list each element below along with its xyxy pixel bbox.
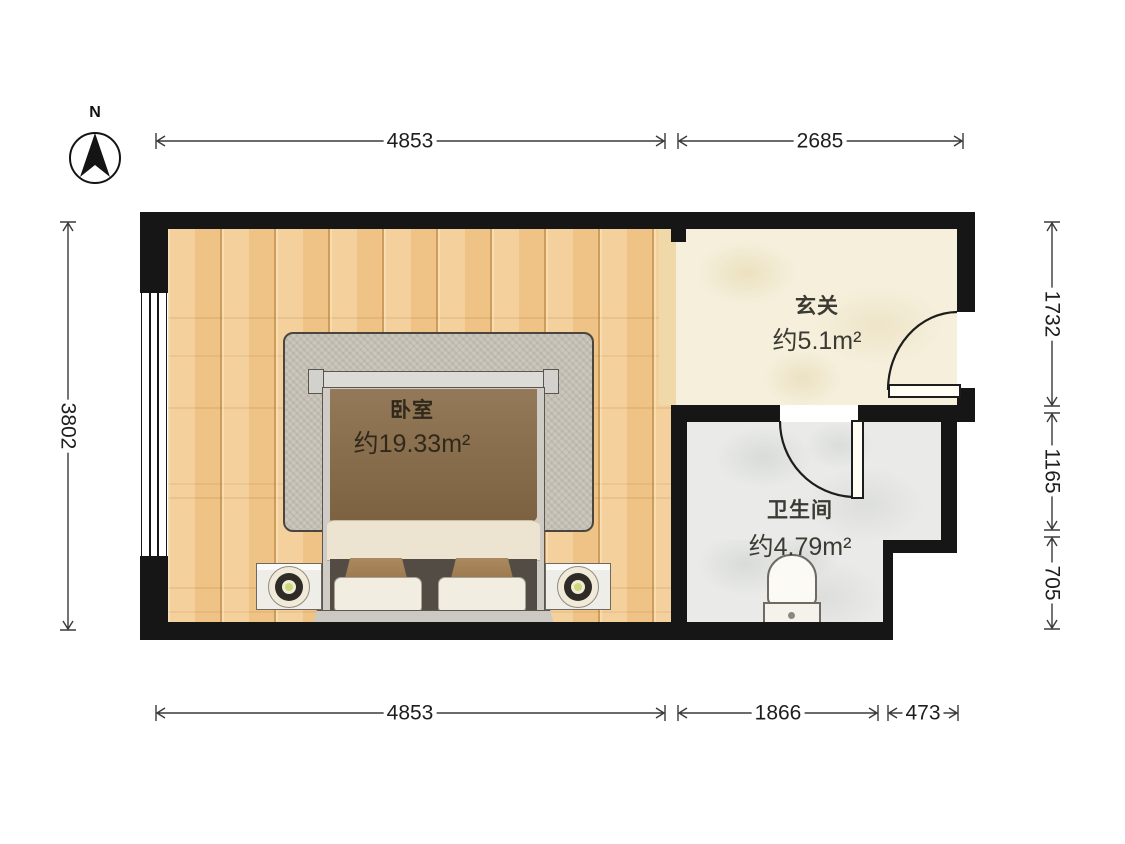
wall-bathroom-top-right	[858, 405, 975, 422]
entry-label: 玄关	[795, 290, 839, 320]
wall-bottom	[140, 622, 893, 640]
floor-plan: 卧室 约19.33m² 玄关 约5.1m² 卫生间 约4.79m²	[0, 0, 1125, 844]
wall-bedroom-bathroom	[671, 405, 687, 622]
entry-area: 约5.1m²	[773, 321, 862, 357]
bathroom-area: 约4.79m²	[749, 527, 852, 563]
bed-footboard-cap-right	[543, 369, 559, 394]
bathroom-door-leaf	[851, 420, 864, 499]
dim-right-2: 1165	[1040, 445, 1063, 496]
wall-bathroom-right	[941, 422, 957, 540]
wall-bathroom-top-left	[687, 405, 780, 422]
dim-top-2: 2685	[794, 129, 847, 152]
wall-bathroom-lower-right	[883, 553, 893, 622]
bathroom-label: 卫生间	[767, 494, 833, 524]
wall-left-upper	[140, 212, 168, 293]
pillow-white-left	[334, 577, 422, 614]
dim-left-1: 3802	[56, 400, 79, 453]
toilet-flush-button	[788, 612, 795, 619]
wall-top	[140, 212, 975, 229]
entry-door-leaf	[888, 384, 961, 398]
dim-bottom-1: 4853	[384, 701, 437, 724]
lamp-bulb-right	[574, 583, 582, 591]
wall-right-entry	[957, 212, 975, 312]
pillow-white-right	[438, 577, 526, 614]
dim-right-3: 705	[1040, 562, 1063, 603]
window-icon	[141, 292, 167, 557]
wall-bathroom-jog	[883, 540, 957, 553]
wall-stub-entry	[671, 229, 686, 242]
threshold-strip	[659, 229, 677, 405]
compass-icon	[70, 133, 120, 183]
bedroom-area: 约19.33m²	[354, 424, 471, 460]
dim-bottom-3: 473	[902, 701, 943, 724]
dim-top-1: 4853	[384, 129, 437, 152]
lamp-bulb-left	[285, 583, 293, 591]
compass-north-label: N	[89, 104, 101, 122]
dim-bottom-2: 1866	[752, 701, 805, 724]
bed-blanket-fold	[327, 520, 540, 561]
dim-right-1: 1732	[1040, 288, 1063, 341]
bedroom-label: 卧室	[390, 394, 434, 424]
